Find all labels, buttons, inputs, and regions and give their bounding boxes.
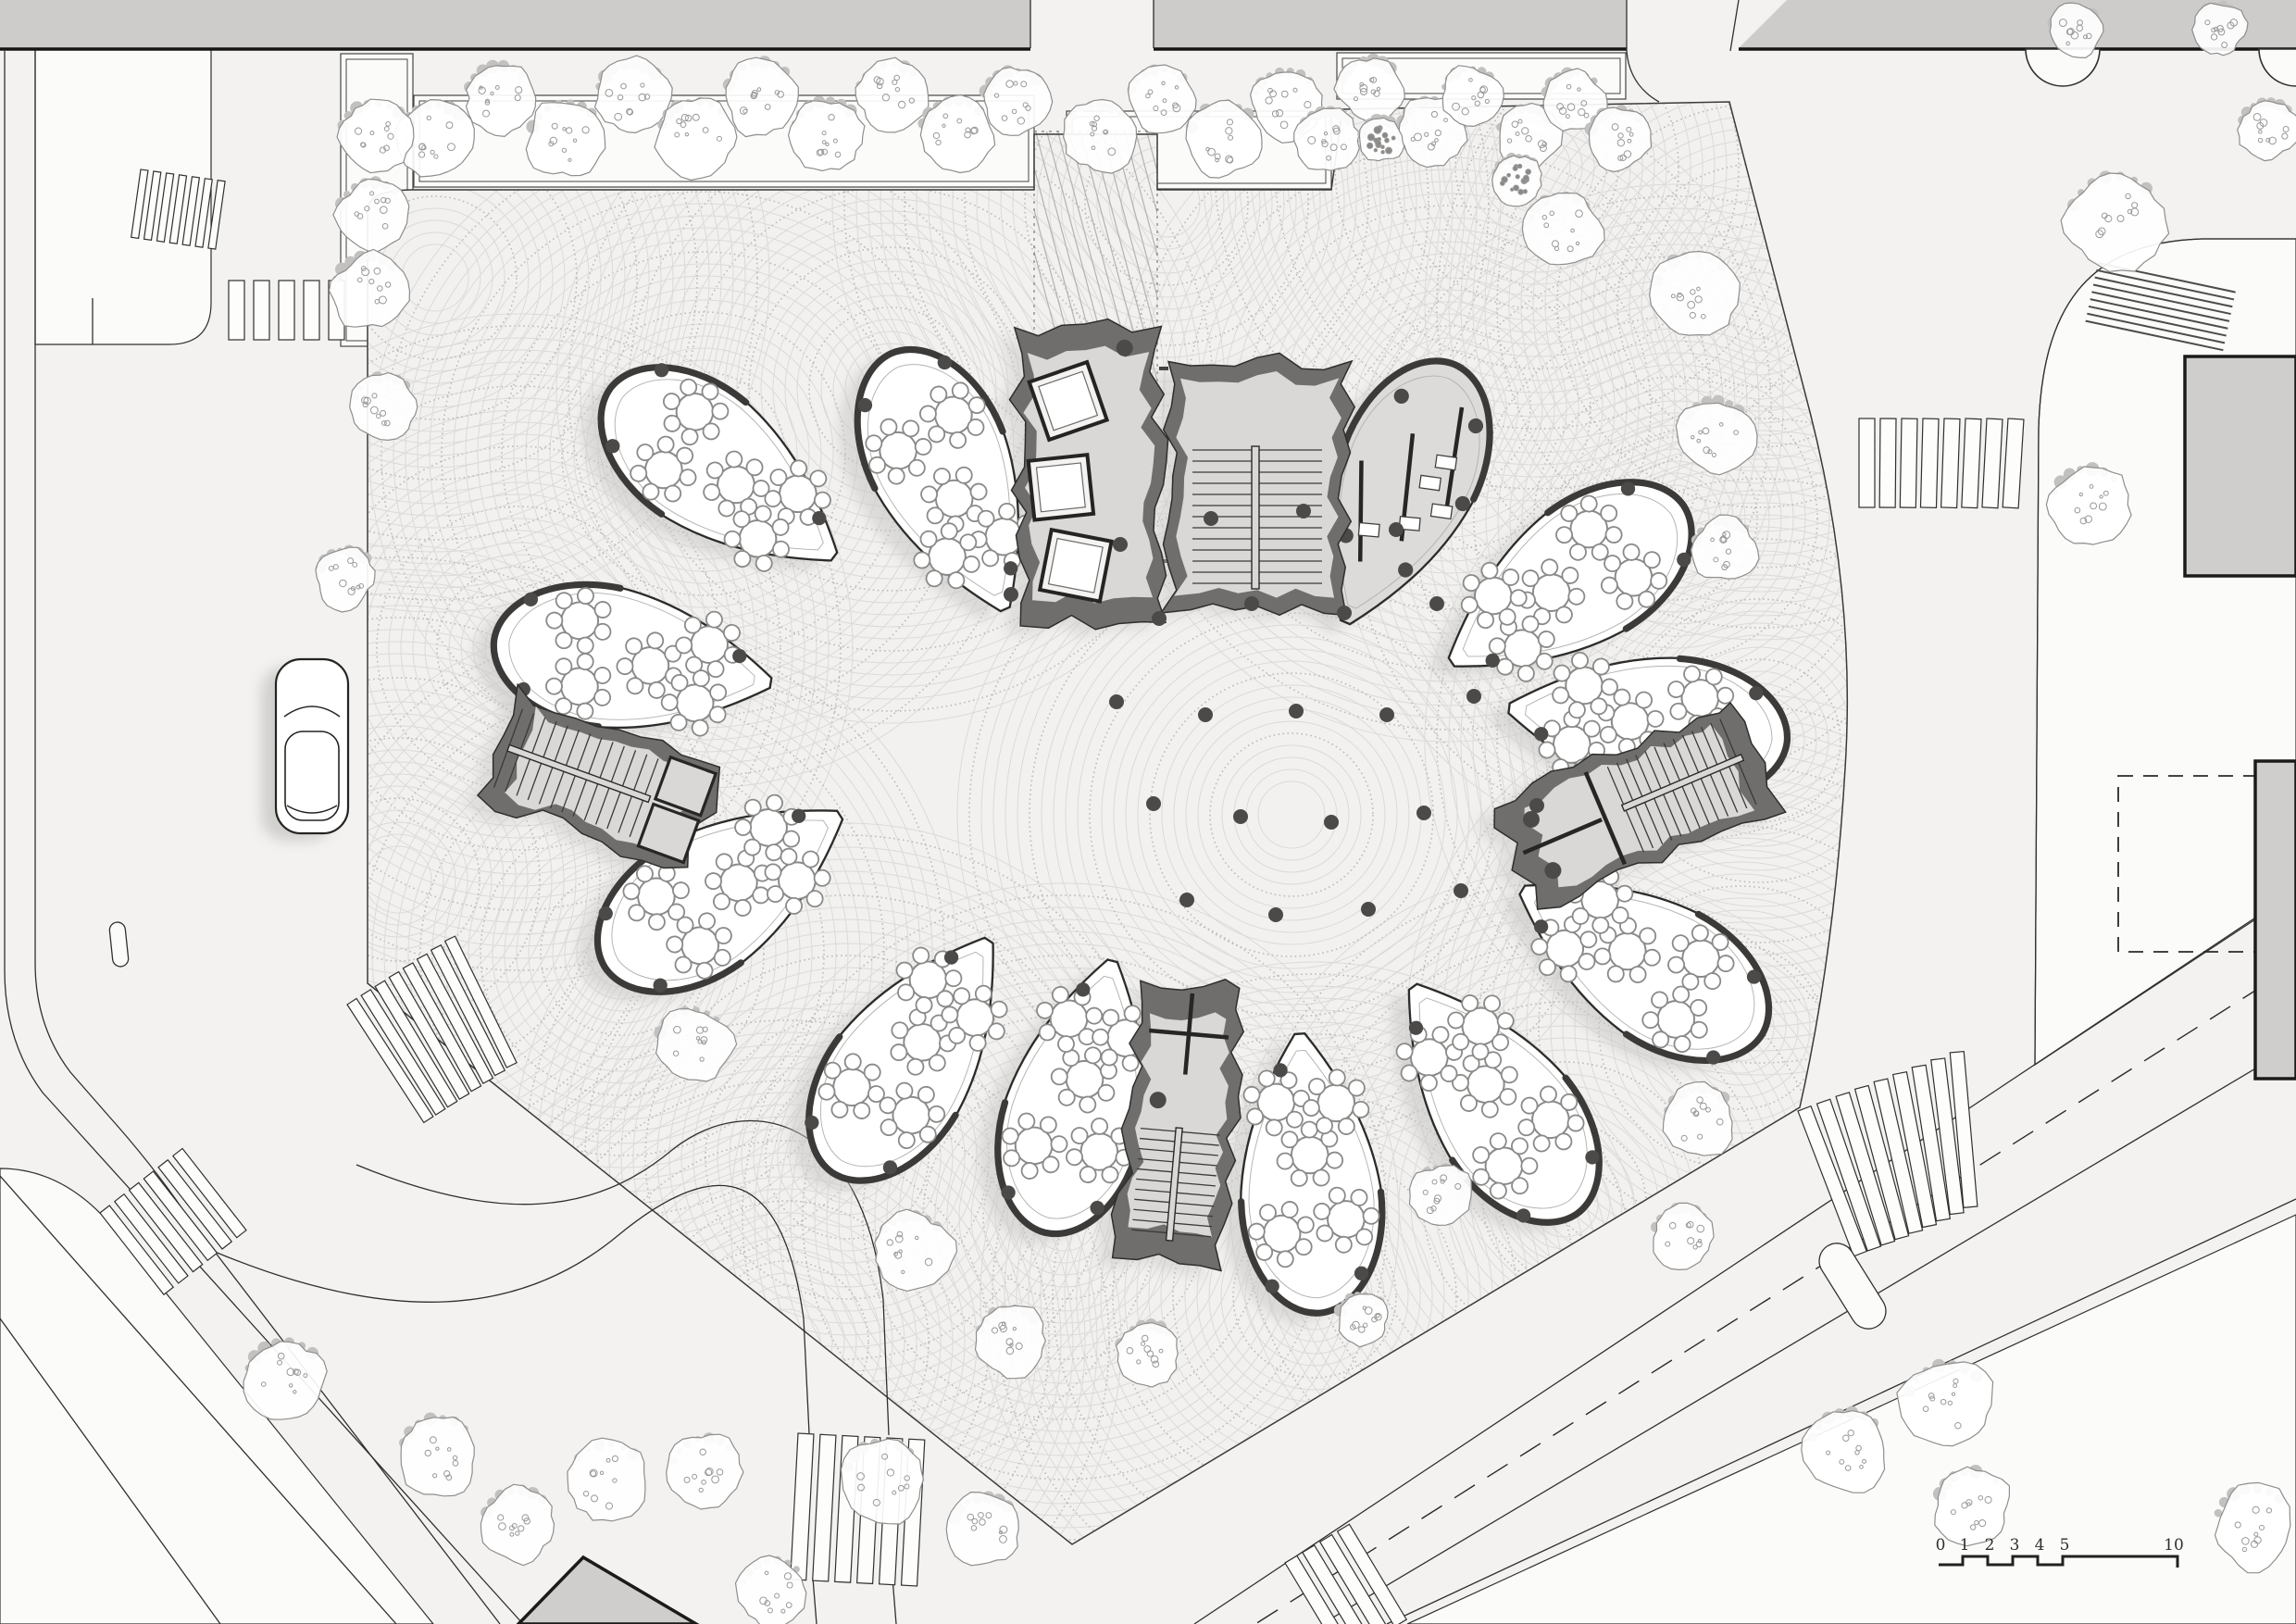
crosswalk-bar	[791, 1433, 814, 1580]
road-line	[813, 1578, 817, 1624]
tree-speckle	[1385, 138, 1390, 143]
tree-speckle	[1516, 175, 1519, 179]
tree-speckle	[1391, 136, 1395, 140]
crosswalk-bar	[254, 281, 269, 340]
tree	[2061, 170, 2169, 271]
plaza-column-dot	[1454, 883, 1468, 898]
crosswalk	[1285, 1524, 1406, 1624]
tree-speckle	[1382, 132, 1388, 138]
stair-handrail	[1252, 446, 1259, 589]
crosswalk	[1798, 1048, 2018, 1257]
chair	[1538, 631, 1555, 648]
scale-bar-label: 4	[2035, 1536, 2045, 1555]
crosswalk-bar	[229, 281, 244, 340]
plaza-column-dot	[1109, 694, 1124, 709]
crosswalk-bar	[813, 1434, 836, 1581]
chair	[955, 467, 972, 483]
crosswalk	[1859, 418, 2024, 508]
tree-speckle	[1386, 148, 1391, 154]
chair	[927, 507, 943, 524]
crosswalk-bar	[1900, 418, 1917, 507]
sanitary-fixture	[1435, 455, 1456, 469]
plaza-column-dot	[1379, 707, 1394, 722]
chair	[1338, 1118, 1354, 1135]
neighbor-building	[2185, 356, 2296, 576]
chair	[1327, 1152, 1342, 1168]
skylight-core	[1005, 318, 1175, 632]
crosswalk-bar	[279, 281, 294, 340]
chair	[1316, 1118, 1333, 1134]
tree-canopy	[1117, 1323, 1179, 1388]
parked-car	[261, 659, 348, 841]
chair	[1561, 1093, 1578, 1111]
crosswalk-bar	[1859, 418, 1875, 507]
chair	[1348, 1080, 1365, 1096]
chair	[1353, 1102, 1369, 1118]
tree-speckle	[1367, 143, 1373, 148]
scale-bar-label: 10	[2164, 1536, 2184, 1555]
scale-bar-label: 1	[1960, 1536, 1970, 1555]
tree	[316, 545, 375, 612]
tree-speckle	[1514, 185, 1519, 191]
chair	[814, 869, 831, 887]
chair	[1303, 1100, 1319, 1117]
tree-speckle	[1367, 134, 1374, 141]
plaza-column-dot	[1361, 902, 1376, 917]
tree-canopy	[316, 547, 375, 612]
plaza-column-dot	[1289, 704, 1304, 718]
car-cabin	[285, 731, 339, 820]
chair	[908, 459, 925, 476]
crosswalk-bar	[1941, 418, 1960, 508]
site-plan-page: 01234510	[0, 0, 2296, 1624]
tree	[1651, 1203, 1714, 1269]
tree-speckle	[1518, 190, 1524, 195]
plaza-column-dot	[1244, 596, 1259, 611]
tree	[667, 1432, 743, 1509]
tree	[480, 1484, 554, 1565]
tree-speckle	[1374, 138, 1379, 143]
chair	[880, 418, 897, 435]
street-band	[0, 0, 1030, 48]
chair	[1517, 1118, 1535, 1136]
chair	[1329, 1069, 1345, 1086]
chair	[1302, 1121, 1317, 1137]
tree	[2238, 97, 2296, 160]
crosswalk-bar	[304, 281, 319, 340]
chair	[1521, 1097, 1539, 1115]
scale-bar-label: 0	[1936, 1536, 1946, 1555]
site-plan-canvas: 01234510	[0, 0, 2296, 1624]
chair	[921, 486, 938, 503]
sanitary-fixture	[1419, 475, 1441, 490]
tree-canopy	[568, 1438, 645, 1521]
plaza-column-dot	[1324, 815, 1339, 830]
skylight	[1029, 455, 1093, 519]
plaza-column-dot	[1529, 798, 1544, 813]
crosswalk-bar	[1962, 418, 1981, 508]
skylight	[1040, 530, 1111, 601]
tree	[526, 99, 605, 175]
tree-canopy	[1935, 1467, 2010, 1546]
chair	[802, 851, 819, 868]
tree-canopy	[2061, 173, 2169, 271]
tree-speckle	[1374, 149, 1377, 152]
chair	[1536, 653, 1554, 670]
chair	[933, 468, 950, 485]
stair-core-main	[1161, 353, 1354, 615]
curb-cut	[2259, 49, 2296, 86]
tree	[350, 371, 418, 440]
road-line	[1627, 0, 1659, 102]
tree	[946, 1492, 1018, 1566]
scale-bar-label: 3	[2010, 1536, 2020, 1555]
tree-speckle	[1522, 179, 1526, 182]
tree-speckle	[1523, 190, 1527, 194]
chair	[1489, 638, 1506, 656]
chair	[866, 435, 882, 452]
chair	[1555, 1133, 1573, 1151]
neighbor-building	[518, 1557, 696, 1624]
crosswalk-bar	[1879, 418, 1896, 507]
street-band	[1154, 0, 1627, 48]
chair	[806, 890, 824, 907]
neighbor-building	[2255, 761, 2296, 1079]
sanitary-fixture	[1358, 523, 1379, 537]
tree-speckle	[1526, 169, 1531, 175]
chair	[1291, 1170, 1307, 1186]
chair	[780, 848, 798, 866]
tree-canopy	[1492, 156, 1541, 206]
chair	[1522, 616, 1540, 633]
chair	[888, 468, 905, 484]
tree-canopy	[946, 1493, 1018, 1566]
crosswalk-bar	[1920, 418, 1939, 507]
plaza-column-dot	[1113, 537, 1128, 552]
tree-speckle	[1513, 166, 1517, 170]
chair	[970, 483, 987, 500]
plaza-column-dot	[1429, 596, 1444, 611]
tree-speckle	[1501, 181, 1505, 186]
plaza-column-dot	[1233, 809, 1248, 824]
road-line	[1730, 0, 1739, 51]
tree-speckle	[1381, 145, 1385, 149]
plaza-column-dot	[1179, 893, 1194, 907]
tree	[568, 1438, 645, 1521]
plaza-column-dot	[1152, 611, 1167, 626]
plaza-column-dot	[1146, 796, 1161, 811]
tree-canopy	[480, 1484, 554, 1565]
chair	[1281, 1131, 1297, 1147]
tree	[243, 1337, 327, 1419]
tree-speckle	[1507, 173, 1511, 177]
scale-bar-label: 2	[1985, 1536, 1995, 1555]
chair	[1533, 1135, 1551, 1153]
traffic-island	[109, 921, 130, 968]
chair	[903, 420, 919, 437]
crosswalk	[229, 281, 344, 340]
plaza-column-dot	[1389, 522, 1404, 537]
plaza-column-dot	[1337, 606, 1352, 620]
chair	[765, 864, 782, 881]
tree-canopy	[984, 68, 1053, 136]
chair	[1313, 1169, 1329, 1185]
chair	[1277, 1153, 1292, 1168]
chair	[1309, 1079, 1326, 1095]
chair	[767, 885, 784, 903]
chair	[1567, 1115, 1585, 1132]
tree-speckle	[1517, 164, 1521, 168]
sanitary-fixture	[1430, 504, 1452, 518]
crosswalk-bar	[2003, 418, 2024, 508]
chair	[868, 456, 885, 473]
tree-canopy	[526, 103, 605, 176]
chair	[915, 438, 931, 455]
chair	[1540, 1086, 1557, 1104]
plaza-column-dot	[1198, 707, 1213, 722]
tree-canopy	[1653, 1203, 1714, 1269]
tree	[399, 1412, 474, 1495]
crosswalk-bar	[1982, 418, 2003, 508]
sidewalk-block-topleft	[35, 48, 211, 344]
plaza-column-dot	[1416, 806, 1431, 820]
scale-bar-label: 5	[2060, 1536, 2070, 1555]
tree-speckle	[1374, 127, 1381, 134]
chair	[785, 897, 803, 915]
plaza-column-dot	[1296, 504, 1311, 518]
tree-speckle	[1381, 151, 1385, 155]
plaza-column-dot	[1204, 511, 1218, 526]
plaza-column-dot	[1466, 689, 1481, 704]
chair	[1517, 665, 1535, 682]
plaza-column-dot	[1268, 907, 1283, 922]
plaza-column-dot	[1004, 587, 1018, 602]
